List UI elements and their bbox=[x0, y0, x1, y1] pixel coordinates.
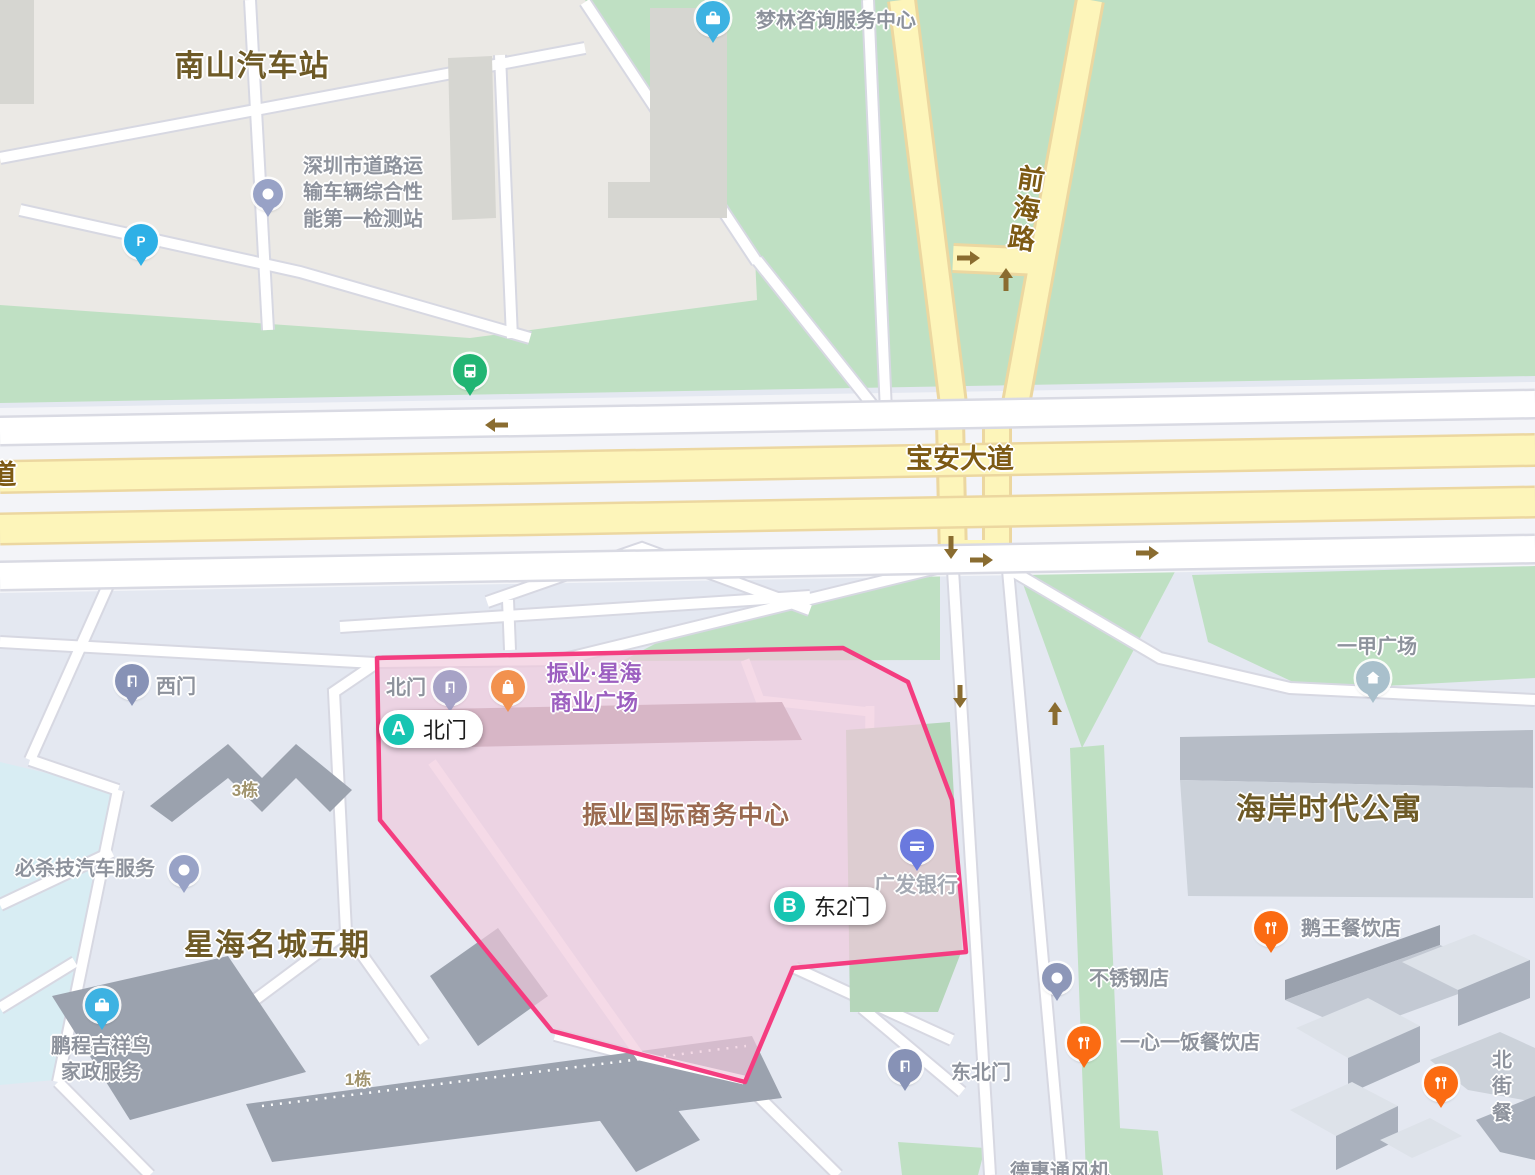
vehicle-inspection-station-label[interactable]: 深圳市道路运 输车辆综合性 能第一检测站 bbox=[303, 153, 423, 232]
bus-stop-pin[interactable] bbox=[453, 354, 487, 388]
xinghai-mingcheng-phase5-label: 星海名城五期 bbox=[184, 926, 370, 966]
yixinyifan-restaurant-label[interactable]: 一心一饭餐饮店 bbox=[1120, 1030, 1260, 1056]
bag-icon bbox=[498, 677, 518, 697]
guangfa-bank-label[interactable]: 广发银行 bbox=[874, 872, 958, 900]
fork-icon bbox=[1431, 1073, 1451, 1093]
nanshan-bus-station-label: 南山汽车站 bbox=[175, 47, 330, 87]
svg-text:P: P bbox=[136, 234, 145, 249]
haian-times-apartment-label: 海岸时代公寓 bbox=[1236, 790, 1422, 830]
map-canvas[interactable]: 南山汽车站宝安大道前海路道振业国际商务中心星海名城五期海岸时代公寓3栋1栋德惠通… bbox=[0, 0, 1535, 1175]
stainless-steel-shop-label[interactable]: 不锈钢店 bbox=[1089, 966, 1169, 992]
beijie-restaurant-pin[interactable] bbox=[1424, 1066, 1458, 1100]
pengcheng-housekeeping-pin[interactable] bbox=[85, 988, 119, 1022]
bishaji-auto-service-pin[interactable] bbox=[169, 855, 199, 885]
stainless-steel-shop-pin[interactable] bbox=[1042, 963, 1072, 993]
route-label-B: 东2门 bbox=[814, 890, 870, 922]
goose-king-restaurant-label[interactable]: 鹅王餐饮店 bbox=[1301, 916, 1401, 942]
briefcase-icon bbox=[92, 995, 112, 1015]
door-icon bbox=[122, 671, 142, 691]
dot-icon bbox=[174, 860, 194, 880]
route-marker-b[interactable]: B东2门 bbox=[770, 887, 886, 925]
door-icon bbox=[440, 677, 460, 697]
building-3-label: 3栋 bbox=[232, 780, 258, 802]
north-gate-label[interactable]: 北门 bbox=[386, 675, 426, 701]
beijie-restaurant-label[interactable]: 北街餐 bbox=[1486, 1047, 1519, 1126]
route-badge-A: A bbox=[383, 714, 414, 745]
north-gate-pin[interactable] bbox=[433, 670, 467, 704]
yixinyifan-restaurant-pin[interactable] bbox=[1067, 1026, 1101, 1060]
bus-icon bbox=[460, 361, 480, 381]
west-gate-label[interactable]: 西门 bbox=[156, 674, 196, 700]
pengcheng-housekeeping-label[interactable]: 鹏程吉祥鸟 家政服务 bbox=[51, 1034, 151, 1087]
menglin-consulting-pin[interactable] bbox=[696, 1, 730, 35]
yijia-plaza-pin[interactable] bbox=[1356, 661, 1390, 695]
northeast-gate-pin[interactable] bbox=[888, 1049, 922, 1083]
northeast-gate-label[interactable]: 东北门 bbox=[951, 1060, 1011, 1086]
dot-icon bbox=[1047, 968, 1067, 988]
route-label-A: 北门 bbox=[423, 713, 467, 745]
briefcase-icon bbox=[703, 8, 723, 28]
parking-icon: P bbox=[131, 231, 151, 251]
card-icon bbox=[907, 836, 927, 856]
building-1-label: 1栋 bbox=[345, 1069, 371, 1091]
zhenye-intl-business-center-label: 振业国际商务中心 bbox=[582, 800, 790, 833]
menglin-consulting-label[interactable]: 梦林咨询服务中心 bbox=[756, 8, 916, 34]
baoan-avenue-road-label: 宝安大道 bbox=[906, 442, 1014, 478]
fork-icon bbox=[1074, 1033, 1094, 1053]
route-badge-B: B bbox=[774, 891, 805, 922]
partial-road-char-label: 道 bbox=[0, 458, 17, 494]
door-icon bbox=[895, 1056, 915, 1076]
dot-icon bbox=[258, 184, 278, 204]
dehui-ventilator-label: 德惠通风机 bbox=[1010, 1159, 1110, 1175]
yijia-plaza-label[interactable]: 一甲广场 bbox=[1337, 634, 1417, 660]
zhenye-xinghai-plaza-pin[interactable] bbox=[491, 670, 525, 704]
poi-overlay: 南山汽车站宝安大道前海路道振业国际商务中心星海名城五期海岸时代公寓3栋1栋德惠通… bbox=[0, 0, 1535, 1175]
parking-pin[interactable]: P bbox=[124, 224, 158, 258]
goose-king-restaurant-pin[interactable] bbox=[1254, 911, 1288, 945]
bishaji-auto-service-label[interactable]: 必杀技汽车服务 bbox=[15, 856, 155, 882]
house-icon bbox=[1363, 668, 1383, 688]
vehicle-inspection-station-pin[interactable] bbox=[253, 179, 283, 209]
guangfa-bank-pin[interactable] bbox=[900, 829, 934, 863]
fork-icon bbox=[1261, 918, 1281, 938]
qianhai-road-label: 前海路 bbox=[998, 162, 1047, 256]
route-marker-a[interactable]: A北门 bbox=[379, 710, 483, 748]
west-gate-pin[interactable] bbox=[115, 664, 149, 698]
zhenye-xinghai-plaza-label[interactable]: 振业·星海 商业广场 bbox=[546, 659, 641, 717]
